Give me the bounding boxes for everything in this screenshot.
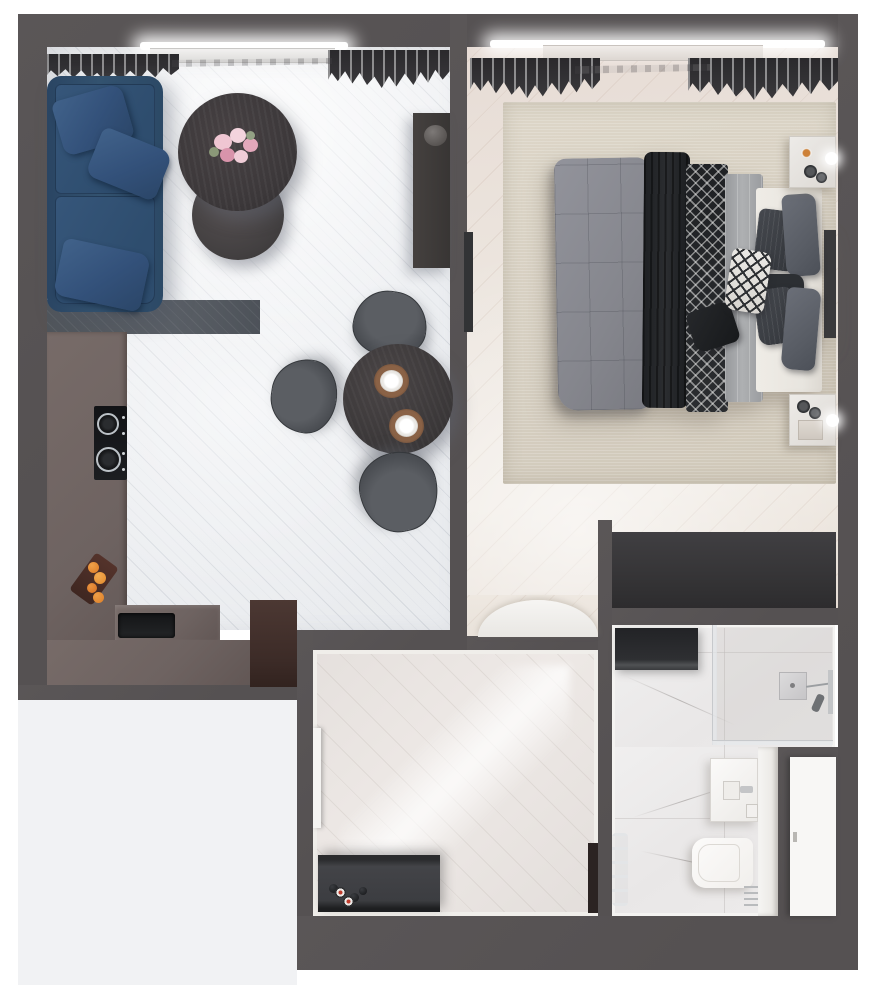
- flower: [243, 138, 258, 152]
- wall-tv: [464, 232, 473, 332]
- nightstand-tray: [798, 420, 823, 440]
- nightstand-decor: [809, 407, 821, 419]
- flower: [220, 148, 235, 162]
- sink-bowl: [723, 781, 740, 800]
- cooktop-burner: [97, 413, 119, 435]
- wardrobe-unit: [612, 532, 836, 608]
- shower-glass-panel: [712, 740, 833, 745]
- patterned-runner: [686, 164, 728, 412]
- outside-area: [18, 700, 297, 985]
- wall-bathroom-top: [612, 608, 838, 625]
- sphere-lamp: [826, 414, 839, 427]
- quilted-comforter: [554, 157, 654, 411]
- orange-fruit: [94, 572, 106, 584]
- faucet: [740, 786, 753, 793]
- washing-machine: [615, 628, 698, 670]
- cooktop-knob: [122, 432, 125, 435]
- entrance-door: [588, 843, 598, 913]
- bed-frame-shadow: [824, 230, 836, 338]
- sphere-lamp: [825, 152, 838, 165]
- floor-plan: [0, 0, 876, 990]
- wall-bedroom-hallway: [467, 636, 612, 650]
- plate: [380, 370, 403, 392]
- toilet-fittings: [744, 884, 758, 906]
- cooktop-burner: [96, 447, 121, 472]
- wall-left: [18, 14, 47, 700]
- decor-sphere: [359, 887, 367, 895]
- wall-living-bedroom: [450, 14, 467, 650]
- cooktop-knob: [122, 468, 125, 471]
- cooktop-knob: [122, 452, 125, 455]
- vase: [424, 125, 447, 146]
- nightstand-decor: [797, 400, 810, 413]
- kitchen-counter-bottom: [47, 640, 250, 685]
- wall-living-hallway: [297, 630, 467, 650]
- door-handle: [793, 832, 797, 842]
- shower-head-center: [790, 683, 795, 688]
- soap-dish: [746, 804, 758, 818]
- toilet: [692, 838, 753, 888]
- open-door-leaf: [313, 728, 321, 828]
- cooktop-knob: [122, 416, 125, 419]
- wall-right: [838, 14, 858, 970]
- shoe-cabinet: [318, 855, 440, 912]
- tall-kitchen-unit: [250, 600, 297, 687]
- wall-bottom: [297, 916, 858, 970]
- charcoal-throw: [642, 152, 690, 408]
- wall-kitchen-bottom: [18, 685, 313, 700]
- shower-rail: [828, 670, 833, 714]
- orange-fruit: [93, 592, 104, 603]
- flower-leaf: [209, 147, 219, 157]
- bed-pillow: [781, 193, 821, 277]
- wall-hallway-right: [598, 520, 612, 970]
- flower-leaf: [246, 131, 255, 140]
- kitchen-sink: [118, 613, 175, 638]
- plate: [395, 415, 418, 437]
- nightstand-decor: [816, 172, 827, 183]
- towel-warmer: [612, 833, 628, 906]
- nightstand-dish: [801, 148, 812, 158]
- shower-glass-panel: [712, 625, 717, 745]
- bed-pillow: [780, 287, 821, 372]
- candle: [343, 896, 354, 907]
- toilet-seat: [698, 844, 740, 882]
- flower: [234, 150, 248, 163]
- bathroom-partition: [758, 747, 778, 916]
